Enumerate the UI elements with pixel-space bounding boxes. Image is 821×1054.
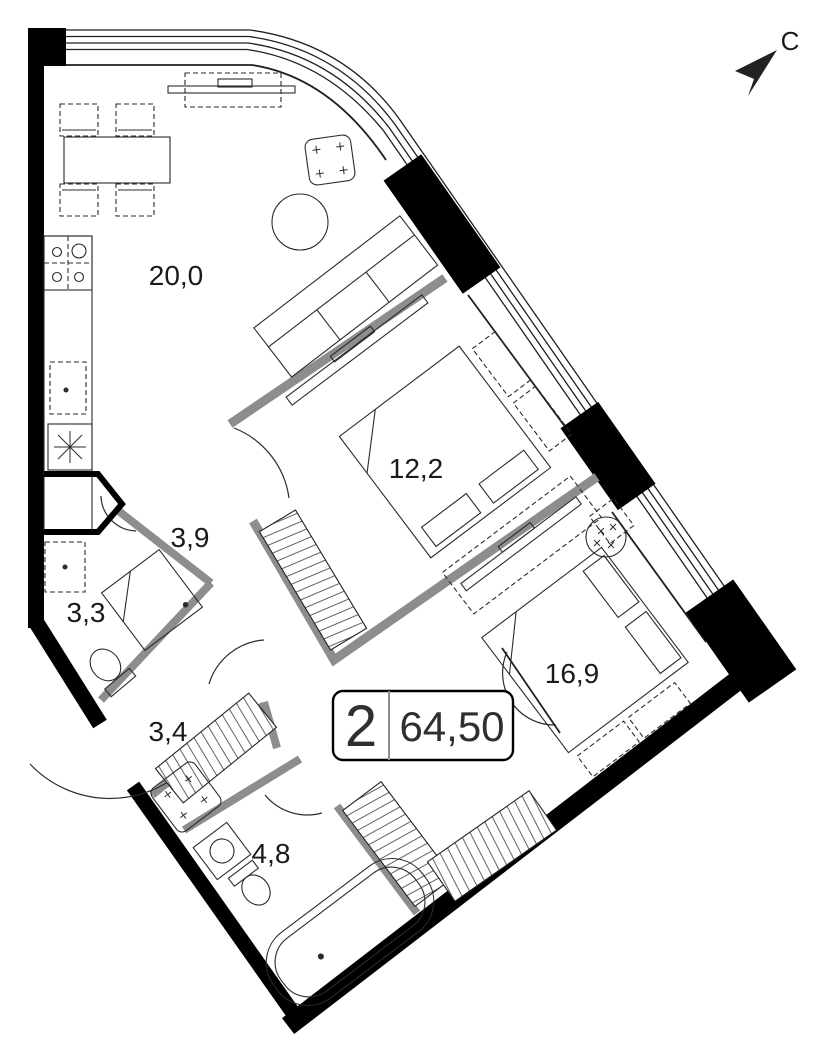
compass-north-label: С: [781, 26, 800, 56]
room-label-bedroom2: 16,9: [545, 658, 600, 689]
bathroom2-door-arc: [265, 795, 322, 815]
north-arrow-icon: [735, 50, 777, 96]
tv-stand-icon: [442, 476, 601, 614]
window-inner-wall-face: [66, 65, 706, 642]
hall-door-arc: [209, 640, 264, 684]
room-label-bathroom1: 3,3: [67, 597, 106, 628]
room-label-bedroom1: 12,2: [389, 453, 444, 484]
facade-column-3: [686, 579, 797, 702]
vent-shaft-icon: [44, 474, 122, 532]
kitchen-living-furniture: [44, 73, 438, 532]
compass: С: [735, 26, 799, 96]
left-wall: [28, 28, 44, 628]
chair-icon: [60, 184, 98, 216]
room-label-hallway: 3,9: [171, 522, 210, 553]
stove-icon: [44, 236, 92, 290]
tv-stand-icon: [168, 73, 295, 107]
floor-plan-page: 20,0 12,2 16,9 3,9 3,3 3,4 4,8 2 64,50 С: [0, 0, 821, 1054]
ceiling-light-icon: [586, 517, 626, 557]
chair-icon: [116, 104, 154, 136]
armchair-icon: [304, 134, 356, 186]
room-label-entry-hall: 3,4: [149, 716, 188, 747]
dining-table-icon: [60, 104, 170, 216]
double-bed-icon: [339, 324, 580, 558]
badge-total-area: 64,50: [399, 703, 504, 750]
kitchen-hob-icon: [48, 424, 92, 470]
floorplan-svg: 20,0 12,2 16,9 3,9 3,3 3,4 4,8 2 64,50 С: [0, 0, 821, 1054]
badge-rooms-count: 2: [345, 694, 377, 759]
kitchen-sink-icon: [50, 362, 86, 414]
tv-board-icon: [282, 290, 427, 405]
chair-icon: [60, 104, 98, 136]
area-badge: 2 64,50: [333, 691, 513, 760]
chair-icon: [116, 184, 154, 216]
coffee-table-icon: [272, 194, 328, 250]
washing-machine-icon: [45, 542, 85, 592]
bedroom1-door-arc: [234, 428, 289, 498]
room-label-bathroom2: 4,8: [252, 838, 291, 869]
room-label-kitchen-living: 20,0: [149, 260, 204, 291]
nightstand-icon: [589, 498, 633, 543]
facade-column-1: [384, 154, 501, 293]
window-facade-lines: [66, 30, 770, 666]
